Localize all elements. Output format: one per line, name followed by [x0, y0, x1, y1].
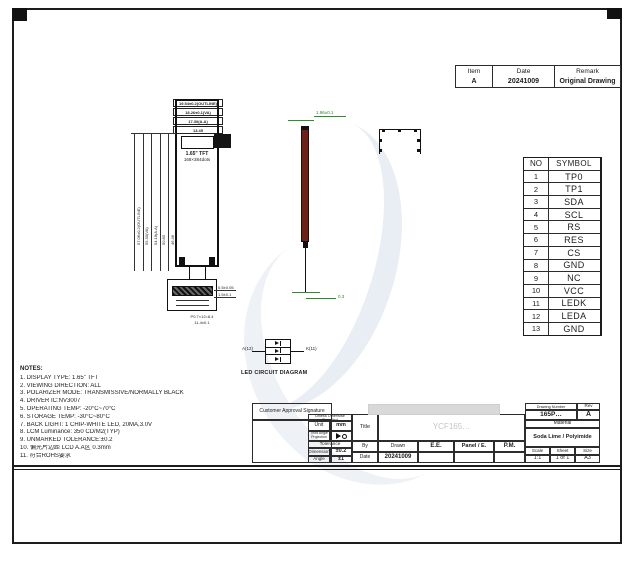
drawing-sheet: Item Date Remark A 20241009 Original Dra… — [0, 0, 634, 572]
pin-row: 7 CS — [524, 246, 600, 259]
by-label: By — [352, 441, 378, 452]
pin-number: 5 — [524, 221, 548, 233]
pin-number: 3 — [524, 196, 548, 208]
pin-number: 11 — [524, 298, 548, 310]
note-item: 8. LCM Luminance: 350 CD/M2(TYP) — [20, 429, 238, 437]
component-block — [214, 134, 231, 148]
tolerance-label: Tolerance — [308, 441, 352, 448]
dim-line-green — [292, 292, 320, 293]
pin-row: 1 TP0 — [524, 170, 600, 183]
pin-symbol: GND — [548, 260, 599, 272]
projection-cell — [330, 431, 352, 441]
rev-label: Rev — [577, 403, 600, 410]
note-item: 5. OPERATING TEMP: -20°C~70°C — [20, 406, 238, 414]
drawn-label: Drawn — [378, 441, 418, 452]
revision-date: 20241009 — [492, 77, 554, 88]
pin-row: 13 GND — [524, 322, 600, 335]
revision-table: Item Date Remark A 20241009 Original Dra… — [455, 65, 621, 88]
pin-symbol: SDA — [548, 196, 599, 208]
led-lead-right — [291, 351, 304, 352]
dimension-line — [143, 133, 144, 271]
dimension-line — [168, 133, 169, 271]
sheet-value: 1 of 1 — [550, 455, 575, 463]
pin-symbol: RS — [548, 221, 599, 233]
pin-number: 2 — [524, 183, 548, 195]
dimension-label: 11.4±0.1 — [180, 320, 224, 325]
note-item: 11. 符合ROHS要求 — [20, 453, 238, 461]
display-outline — [175, 99, 219, 267]
notes-title: NOTES: — [20, 366, 238, 374]
pin-header-symbol: SYMBOL — [548, 158, 599, 170]
drawing-number-label: Drawing Number — [525, 403, 577, 410]
pin-symbol: VCC — [548, 285, 599, 297]
pin-symbol: NC — [548, 272, 599, 284]
revision-header-row: Item Date Remark — [456, 66, 620, 77]
size-label: Size — [575, 447, 600, 455]
front-view-left-dimensions: 57.06±0.2(OUTLINE) 55.30(VA) 54.18(A.A) … — [131, 133, 174, 271]
dimension-line — [160, 133, 161, 271]
connector-inner-line — [176, 305, 209, 306]
display-label: 1.65" TFT 168×384dots — [175, 151, 219, 162]
led-diode-icon — [275, 341, 279, 345]
led-diode-icon — [275, 349, 279, 353]
note-item: 3. POLARIZER MODE: TRANSMISSIVE/NORMALLY… — [20, 390, 238, 398]
led-diode-icon — [275, 357, 279, 361]
note-item: 10. 偏光片边距 LCD A.A区 0.3mm — [20, 445, 238, 453]
dimension-line — [134, 133, 135, 271]
dimension-tolerance-value: ±0.2 — [330, 448, 352, 456]
dimension-label: 46.46 — [170, 235, 175, 245]
sheet-label: Sheet — [550, 447, 575, 455]
pin-table-header: NO SYMBOL — [524, 158, 600, 170]
rev-value: A — [577, 410, 600, 420]
empty-cell — [418, 452, 454, 463]
corner-mark-top-left — [12, 8, 27, 21]
section-tick — [382, 129, 385, 132]
led-branch — [266, 340, 290, 348]
scale-value: 1:1 — [525, 455, 550, 463]
revision-remark: Original Drawing — [554, 77, 620, 88]
bezel-corner-right — [209, 257, 215, 266]
pin-symbol: GND — [548, 323, 599, 335]
pin-row: 2 TP1 — [524, 182, 600, 195]
revision-header-item: Item — [456, 66, 492, 77]
dim-leader-line — [214, 297, 236, 298]
vertical-dimension: 46.46 — [165, 133, 174, 271]
dimension-label: 1.5±0.1 — [218, 292, 231, 297]
dimension-label: P0.7×12=8.4 — [180, 314, 224, 319]
dim-line-green — [288, 120, 314, 121]
pin-symbol: TP1 — [548, 183, 599, 195]
note-item: 6. STORAGE TEMP: -30°C~80°C — [20, 414, 238, 422]
pin-symbol: TP0 — [548, 171, 599, 183]
bezel-corner-left — [179, 257, 185, 266]
led-lead-left — [252, 351, 265, 352]
title-label: Title — [352, 414, 378, 441]
pin-number: 10 — [524, 285, 548, 297]
spec-header: Unless Otherwise Specified — [308, 414, 352, 421]
led-diode-bar — [280, 348, 281, 353]
unit-value: mm — [330, 421, 352, 431]
dim-leader-line — [214, 290, 236, 291]
led-branch — [266, 355, 290, 363]
dim-line-green — [306, 298, 336, 299]
section-tick — [417, 139, 420, 142]
pin-number: 12 — [524, 310, 548, 322]
pin-number: 4 — [524, 209, 548, 221]
dimension-line — [151, 133, 152, 271]
pin-symbol: CS — [548, 247, 599, 259]
unit-label: Unit — [308, 421, 330, 431]
left-dim-list: 57.06±0.2(OUTLINE) 55.30(VA) 54.18(A.A) … — [131, 133, 174, 271]
led-branch — [266, 348, 290, 356]
pin-header-no: NO — [524, 158, 548, 170]
connector-contact-band — [172, 286, 213, 296]
led-parallel-box — [265, 339, 291, 364]
note-item: 1. DISPLAY TYPE: 1.65" TFT — [20, 375, 238, 383]
vertical-dimension: 55.30(VA) — [140, 133, 149, 271]
pin-table: NO SYMBOL 1 TP0 2 TP1 3 SDA — [523, 157, 602, 336]
material-label: Material — [525, 420, 600, 428]
connector-inner-line — [176, 300, 209, 301]
pin-row: 5 RS — [524, 220, 600, 233]
empty-cell — [494, 452, 525, 463]
angle-tolerance-label: Angle — [308, 456, 330, 463]
pin-row: 8 GND — [524, 259, 600, 272]
section-tick — [414, 129, 417, 132]
third-angle-projection-icon — [336, 433, 347, 439]
revision-header-date: Date — [492, 66, 554, 77]
empty-cell — [454, 452, 494, 463]
led-cathode-label: K(11) — [306, 346, 317, 351]
section-tick — [417, 149, 420, 152]
pin-number: 8 — [524, 260, 548, 272]
pin-rows: 1 TP0 2 TP1 3 SDA 4 SCL — [524, 170, 600, 335]
drawing-number-value: 165P… — [525, 410, 577, 420]
size-value: A3 — [575, 455, 600, 463]
section-view-bracket — [379, 129, 421, 154]
dimension-tolerance-label: Dimension — [308, 448, 330, 456]
pin-symbol: SCL — [548, 209, 599, 221]
section-tick — [379, 149, 382, 152]
note-item: 7. BACK LIGHT: 1 CHIP-WHITE LED, 20MA,3.… — [20, 422, 238, 430]
pin-row: 4 SCL — [524, 208, 600, 221]
notes-section: NOTES: 1. DISPLAY TYPE: 1.65" TFT2. VIEW… — [20, 366, 238, 461]
notes-list: 1. DISPLAY TYPE: 1.65" TFT2. VIEWING DIR… — [20, 375, 238, 461]
display-resolution-label: 168×384dots — [175, 157, 219, 162]
note-item: 4. DRIVER IC:NV3007 — [20, 398, 238, 406]
pin-symbol: LEDK — [548, 298, 599, 310]
led-diode-bar — [280, 341, 281, 346]
pin-row: 9 NC — [524, 271, 600, 284]
date-value: 20241009 — [378, 452, 418, 463]
pin-symbol: LEDA — [548, 310, 599, 322]
vertical-dimension: 50.80 — [157, 133, 166, 271]
scale-label: Scale — [525, 447, 550, 455]
pin-row: 11 LEDK — [524, 297, 600, 310]
dimension-label: 0.3 — [338, 294, 344, 299]
dimension-label: 1.96±0.1 — [316, 110, 333, 115]
date-label: Date — [352, 452, 378, 463]
dimension-label: 0.5±0.05 — [218, 285, 234, 290]
revision-item: A — [456, 77, 492, 88]
pin-number: 13 — [524, 323, 548, 335]
dim-line-green — [314, 116, 346, 117]
pin-row: 10 VCC — [524, 284, 600, 297]
side-view-panel-bar — [301, 126, 309, 242]
material-value: Soda Lime / Polyimide — [525, 428, 600, 447]
pin-symbol: RES — [548, 234, 599, 246]
revision-row: A 20241009 Original Drawing — [456, 77, 620, 88]
panel-approver: Panel / E. — [454, 441, 494, 452]
drawn-value: E.E. — [418, 441, 454, 452]
vertical-dimension: 54.18(A.A) — [148, 133, 157, 271]
title-value: YCF165… — [378, 414, 525, 441]
pin-number: 6 — [524, 234, 548, 246]
side-view-fpc-line — [305, 248, 306, 292]
pin-row: 3 SDA — [524, 195, 600, 208]
vertical-dimension: 57.06±0.2(OUTLINE) — [131, 133, 140, 271]
pin-row: 12 LEDA — [524, 309, 600, 322]
led-circuit-caption: LED CIRCUIT DIAGRAM — [241, 370, 331, 376]
revision-header-remark: Remark — [554, 66, 620, 77]
pin-number: 7 — [524, 247, 548, 259]
section-tick — [379, 139, 382, 142]
projection-label: Third Angle Projection — [308, 431, 330, 441]
angle-tolerance-value: ±1 — [330, 456, 352, 463]
revision-rows: A 20241009 Original Drawing — [456, 77, 620, 88]
corner-mark-top-right — [607, 8, 622, 19]
note-item: 2. VIEWING DIRECTION: ALL — [20, 383, 238, 391]
title-block-bottom-rule — [12, 465, 622, 470]
company-watermark-box — [368, 404, 500, 415]
led-diode-bar — [280, 357, 281, 362]
pin-number: 1 — [524, 171, 548, 183]
note-item: 9. UNMARKED TOLERANCE:±0.2 — [20, 437, 238, 445]
driver-ic-area — [181, 136, 214, 149]
pin-number: 9 — [524, 272, 548, 284]
section-tick — [398, 129, 401, 132]
pm-approver: P.M. — [494, 441, 525, 452]
pin-row: 6 RES — [524, 233, 600, 246]
